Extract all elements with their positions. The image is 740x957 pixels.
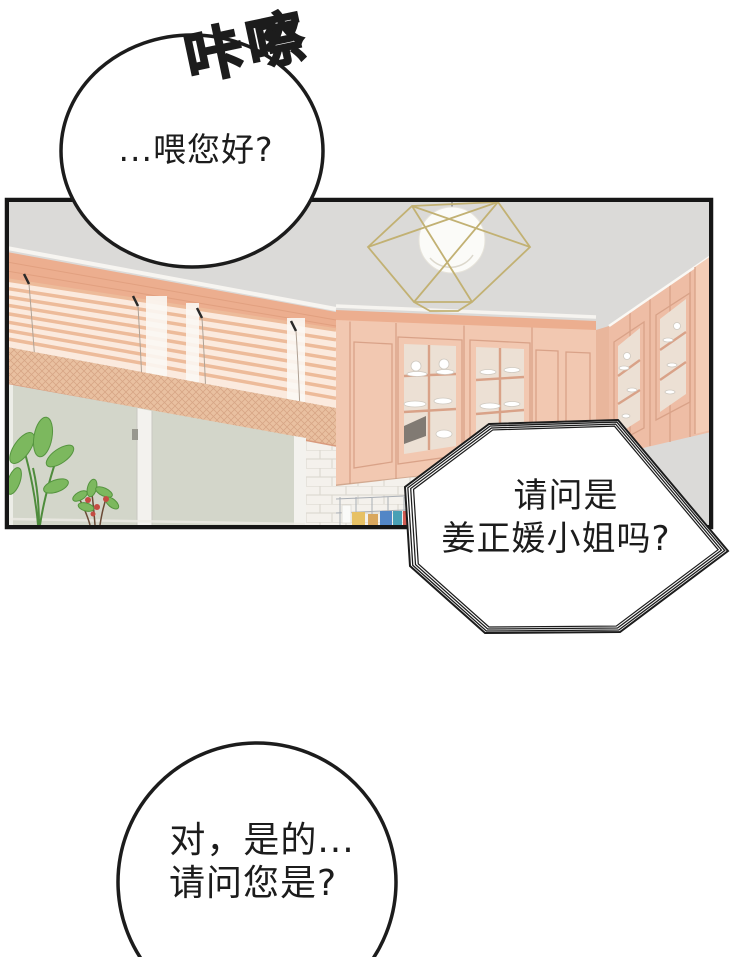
window-mullion [137,408,152,525]
window-latch [132,429,138,440]
reply-text-line2: 请问您是? [169,863,337,904]
greeting-text: ...喂您好? [119,130,274,169]
caller-text-line2: 姜正媛小姐吗? [441,519,670,559]
comic-page: ...喂您好? 咔嚓 请问是 姜正媛小姐吗? 对，是的... 请问您是? [0,0,740,957]
caller-text-line1: 请问是 [514,476,619,516]
speech-bubble-reply: 对，是的... 请问您是? [118,743,396,957]
comic-art: ...喂您好? 咔嚓 请问是 姜正媛小姐吗? 对，是的... 请问您是? [0,0,740,957]
reply-text-line1: 对，是的... [169,820,354,861]
